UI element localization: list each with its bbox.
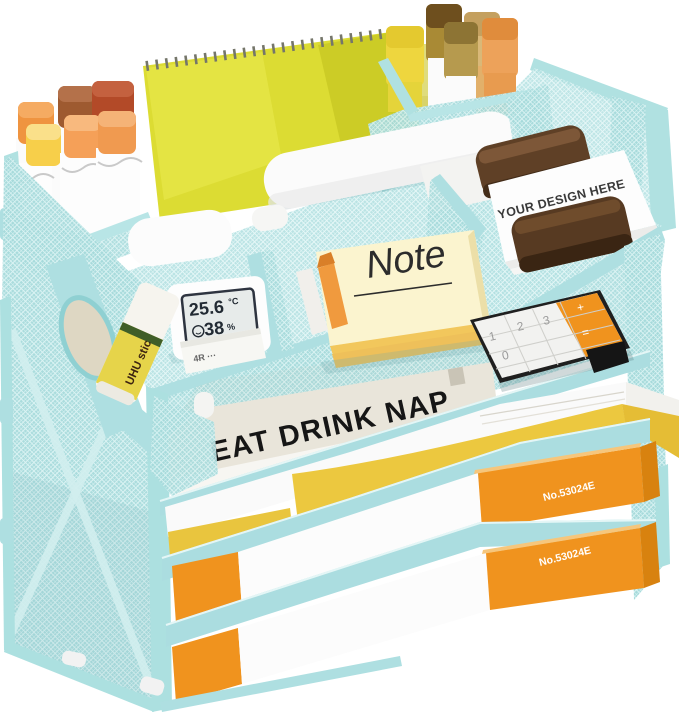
svg-text:°C: °C (228, 296, 240, 307)
svg-text:25.6: 25.6 (188, 296, 225, 320)
svg-text:%: % (226, 321, 235, 332)
